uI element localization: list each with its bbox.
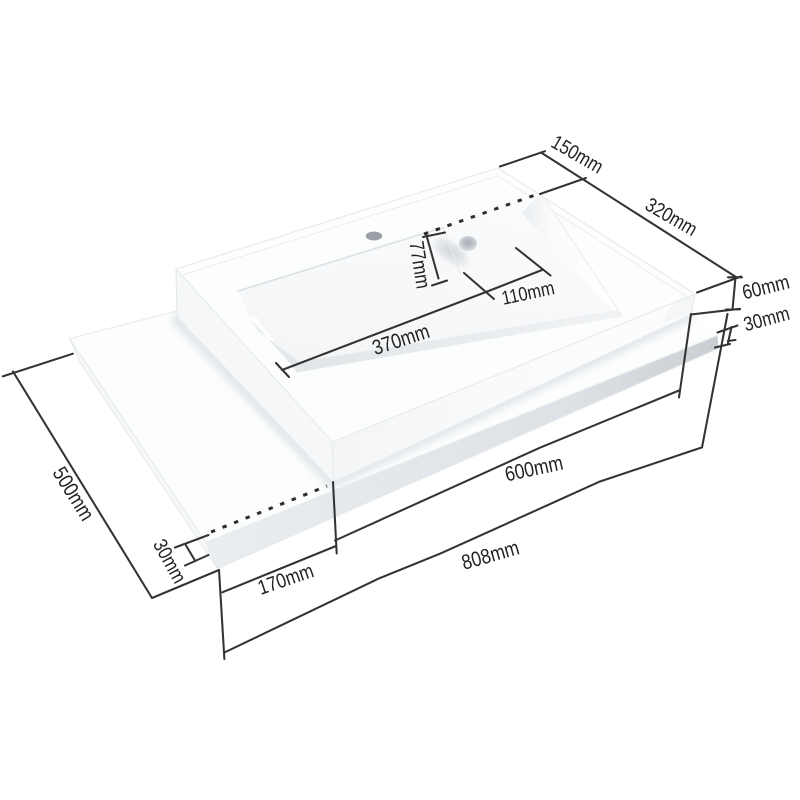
svg-text:320mm: 320mm (642, 193, 702, 241)
svg-text:30mm: 30mm (741, 301, 792, 335)
svg-text:150mm: 150mm (548, 130, 608, 178)
svg-text:600mm: 600mm (503, 451, 565, 487)
svg-text:500mm: 500mm (47, 463, 98, 525)
svg-text:60mm: 60mm (740, 271, 792, 305)
